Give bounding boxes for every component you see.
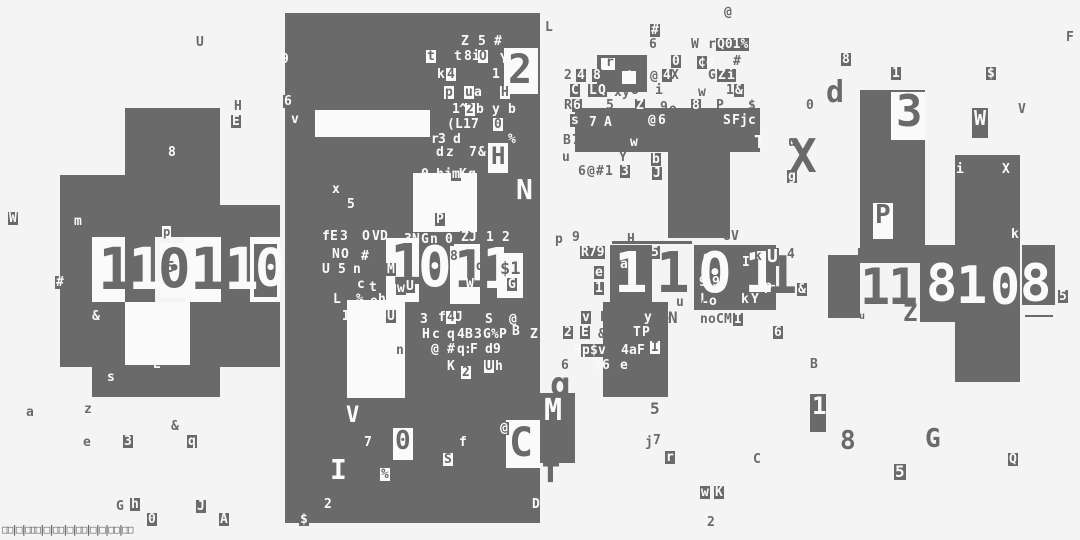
glyph: S [613,134,621,147]
glyph: Y [750,293,760,306]
glyph: H [422,328,430,341]
glyph: 8 [691,99,701,112]
glyph: 8 [168,146,176,159]
glyph: i [956,163,964,176]
glyph: # [650,24,660,37]
glyph: G [507,278,517,291]
glyph: 2 [644,134,652,147]
glyph: 1 [812,394,826,418]
glyph: D [532,498,540,511]
glyph: q [703,251,711,264]
glyph: 0 [255,243,286,295]
glyph: C [716,313,724,326]
glyph: x [594,359,602,372]
glyph: 6 [602,359,610,372]
glyph: 1 [224,240,259,298]
glyph: j [645,436,653,449]
glyph: R [564,99,572,112]
glyph: P [641,326,651,339]
glyph: 6 [578,165,586,178]
glyph: I [330,456,347,484]
glyph: W [466,278,474,291]
glyph: x [614,86,622,99]
glyph: e [594,266,604,279]
glyph: & [477,146,487,159]
glyph: y [643,311,653,324]
light-patch [125,302,190,365]
glyph: 1 [492,68,500,81]
glyph: @ [587,165,595,178]
glyph: @ [648,114,656,127]
glyph: I [733,313,743,326]
glyph: v [581,311,591,324]
glyph: G [925,426,941,452]
glyph: T [754,134,765,152]
gray-block [60,175,220,237]
glyph: Z [530,328,538,341]
glyph: Y [500,53,508,66]
glyph: S [443,453,453,466]
glyph: C [753,453,761,466]
glyph: d [436,146,444,159]
glyph: M [724,313,732,326]
glyph: B [563,134,571,147]
gray-block [60,237,92,302]
glyph: 4 [787,248,795,261]
glyph: I [342,310,350,323]
glyph: N [332,248,340,261]
glyph: p [444,86,454,99]
glyph: $1 [500,261,520,278]
glyph: # [447,343,455,356]
glyph: f [322,230,330,243]
gray-block [668,152,730,238]
box-strip: □□|□|□□□|□|□□|□|□□|□|□|□□|□□ [2,524,131,535]
glyph: a [26,406,34,419]
glyph: K [459,168,467,181]
glyph: 8 [841,53,851,66]
glyph: b [651,153,661,166]
glyph: 1 [463,118,471,131]
glyph: u [562,151,570,164]
glyph: 9 [712,276,720,289]
glyph: D [380,230,388,243]
glyph: W [691,38,699,51]
glyph: @ [499,422,509,435]
glyph: 7 [471,118,479,131]
glyph: 0 [573,344,581,357]
glyph: F [637,344,645,357]
glyph: 6 [572,99,582,112]
glyph: 2 [563,326,573,339]
glyph: v [597,344,607,357]
glyph: n [352,263,362,276]
glyph: F [470,343,478,356]
glyph: s [570,114,580,127]
glyph: t [426,50,436,63]
glyph: 5 [650,401,660,417]
glyph: 8 [1020,258,1051,310]
glyph: C [570,84,580,97]
glyph: a [474,86,482,99]
glyph: E [231,115,241,128]
glyph: h [436,168,444,181]
glyph: # [55,276,65,289]
glyph: 0 [421,168,429,181]
glyph: 2 [324,498,332,511]
glyph: & [171,420,179,433]
glyph: 5 [478,35,486,48]
glyph: 1 [891,67,901,80]
glyph: % [508,133,516,146]
glyph: & [598,328,606,341]
glyph: f [540,453,562,489]
glyph: $ [986,67,996,80]
glyph: w [700,486,710,499]
glyph: J [652,167,662,180]
glyph: H [234,100,242,113]
glyph: & [734,84,744,97]
glyph: r [665,451,675,464]
glyph: 9 [699,276,707,289]
noise-canvas: UHE8Wm#&Es@az&e3qGh0JA117p0511096vZ5#tt8… [0,0,1080,540]
glyph: b [476,103,484,116]
glyph: 2 [564,69,572,82]
glyph: L [333,293,341,306]
glyph: p [555,233,563,246]
glyph: v [291,113,299,126]
glyph: Y [619,151,627,164]
glyph: 9 [572,231,580,244]
glyph: # [733,55,741,68]
glyph: J [196,500,206,513]
glyph: H [500,86,510,99]
glyph: 8 [636,293,644,306]
glyph: 6 [649,38,657,51]
glyph: U [386,310,396,323]
glyph: i [726,69,736,82]
glyph: 2 [707,516,715,529]
glyph: A [604,116,612,129]
glyph: X [789,133,817,179]
glyph: @ [166,366,178,386]
glyph: $ [748,99,756,112]
glyph: o [708,313,716,326]
glyph: # [360,250,370,263]
glyph: & [92,310,100,323]
glyph: 2 [465,103,475,116]
glyph: e [620,359,628,372]
glyph: r [606,56,614,69]
glyph: e [83,436,91,449]
glyph: 3 [620,165,630,178]
glyph: 4 [576,69,586,82]
glyph: U [484,360,494,373]
glyph: 0 [671,55,681,68]
glyph: y [622,86,630,99]
glyph: o [370,295,378,308]
glyph: E [153,358,161,371]
glyph: % [491,328,499,341]
glyph: B [512,325,520,338]
glyph: c [357,278,365,291]
glyph: L [545,21,553,34]
glyph: j [740,114,748,127]
glyph: 6 [773,326,783,339]
glyph: P [435,213,445,226]
glyph: 5 [606,99,614,112]
glyph: $ [299,513,309,526]
glyph: 7 [572,134,580,147]
glyph: F [732,114,740,127]
light-patch [315,110,430,137]
glyph: 9 [281,53,289,66]
glyph: I [650,341,660,354]
glyph: @ [650,70,658,83]
glyph: J [455,311,463,324]
glyph: p [764,280,772,293]
glyph: I [742,256,750,269]
glyph: 3 [339,230,349,243]
glyph: y [492,103,500,116]
glyph: V [1018,103,1026,116]
glyph: P [716,99,724,112]
glyph: 7 [589,116,597,129]
glyph: % [380,468,390,481]
glyph: 0 [990,262,1020,312]
glyph: 0 [418,240,452,296]
glyph: b [508,103,516,116]
glyph: c [432,328,440,341]
glyph: @ [430,343,440,356]
glyph: u [368,312,376,325]
glyph: o [669,103,677,116]
glyph: 3 [123,435,133,448]
glyph: K [714,486,724,499]
glyph: 1 [726,84,734,97]
glyph: f [459,436,467,449]
glyph: u [464,86,474,99]
glyph: E [580,326,590,339]
glyph: Z [635,99,645,112]
glyph: u [859,312,865,322]
glyph: 8 [592,69,602,82]
glyph: 3 [420,313,428,326]
glyph: 9 [493,343,501,356]
glyph: X [1002,163,1010,176]
glyph: 5 [347,198,355,211]
glyph: 1 [190,240,225,298]
glyph: P [499,328,507,341]
glyph: T [633,326,641,339]
gray-block [1025,315,1053,317]
glyph: t [368,281,378,294]
glyph: 2 [461,366,471,379]
glyph: 5 [338,263,346,276]
glyph: R79 [580,246,605,259]
glyph: O [478,50,488,63]
glyph: 5 [894,464,906,480]
glyph: N [668,310,678,326]
glyph: A [219,513,229,526]
glyph: q [447,328,455,341]
glyph: N [516,176,533,204]
glyph: 1 [860,262,890,312]
glyph: z [84,403,92,416]
glyph: i [655,84,663,97]
glyph: Q [597,84,607,97]
glyph: Z [461,35,469,48]
glyph: U [405,280,415,293]
glyph: W [8,212,18,225]
glyph: K [450,278,458,291]
gray-block [125,108,220,175]
glyph: s [106,371,116,384]
glyph: k [1011,228,1019,241]
glyph: d [485,343,493,356]
glyph: 1 [594,282,604,295]
glyph: E [330,230,338,243]
glyph: H [491,144,505,168]
glyph: F [1066,31,1074,44]
glyph: Z [903,301,917,325]
glyph: c [748,114,756,127]
glyph: U [322,263,330,276]
glyph: k [740,293,750,306]
glyph: w [629,136,639,149]
glyph: d [826,78,844,108]
glyph: h [495,360,503,373]
glyph: q [728,295,736,308]
glyph: 0 [395,428,411,454]
glyph: K [446,360,456,373]
glyph: S [722,114,732,127]
glyph: & [350,311,358,324]
glyph: t [454,50,462,63]
glyph: a [629,344,637,357]
glyph: 4 [446,68,456,81]
glyph: V [731,230,739,243]
glyph: S [485,313,493,326]
glyph: B [465,328,473,341]
glyph: & [797,283,807,296]
glyph: 5 [1058,290,1068,303]
glyph: 1 [605,165,613,178]
glyph: # [494,35,502,48]
glyph: O [362,230,370,243]
glyph: U [766,248,779,266]
glyph: L [455,118,463,131]
glyph: h [378,293,386,306]
glyph: w [696,298,704,311]
glyph: n [396,344,404,357]
glyph: Q01% [716,38,749,51]
glyph: 5 [166,260,175,275]
glyph: % [356,293,364,306]
glyph: 0 [806,99,814,112]
glyph: E [600,311,608,324]
glyph: 6 [283,95,293,108]
glyph: 6 [658,114,666,127]
glyph: 7 [364,436,372,449]
glyph: C [509,423,533,463]
glyph: G [708,69,716,82]
glyph: 3 [474,328,482,341]
glyph: 0 [493,118,503,131]
glyph: M [544,396,562,426]
glyph: h [130,498,140,511]
glyph: W [974,108,986,128]
glyph: P [875,202,891,228]
glyph: 7 [653,434,661,447]
glyph: k [754,250,762,263]
glyph: @ [724,6,732,19]
glyph: 3 [896,90,923,134]
glyph: 8 [631,84,639,97]
glyph: 1 [956,260,987,312]
glyph: z [446,146,454,159]
glyph: o [709,295,717,308]
glyph: m [74,215,82,228]
glyph: 3 [387,293,395,306]
glyph: B [810,358,818,371]
glyph: V [346,405,359,427]
glyph: 8 [926,258,957,310]
glyph: n [700,313,708,326]
glyph: r [708,38,716,51]
glyph: x [332,183,340,196]
glyph: 1 [656,246,690,302]
glyph: 0 [147,513,157,526]
glyph: Q [1008,453,1018,466]
glyph: O [341,248,349,261]
glyph: q [187,435,197,448]
glyph: U [196,36,204,49]
glyph: 2 [508,50,532,90]
glyph: g [468,168,476,181]
glyph: k [437,68,445,81]
glyph: G [116,500,124,513]
glyph: 8 [840,428,856,454]
glyph: X [671,69,679,82]
glyph: # [596,165,604,178]
glyph: ( [447,118,455,131]
gray-block [828,255,860,318]
